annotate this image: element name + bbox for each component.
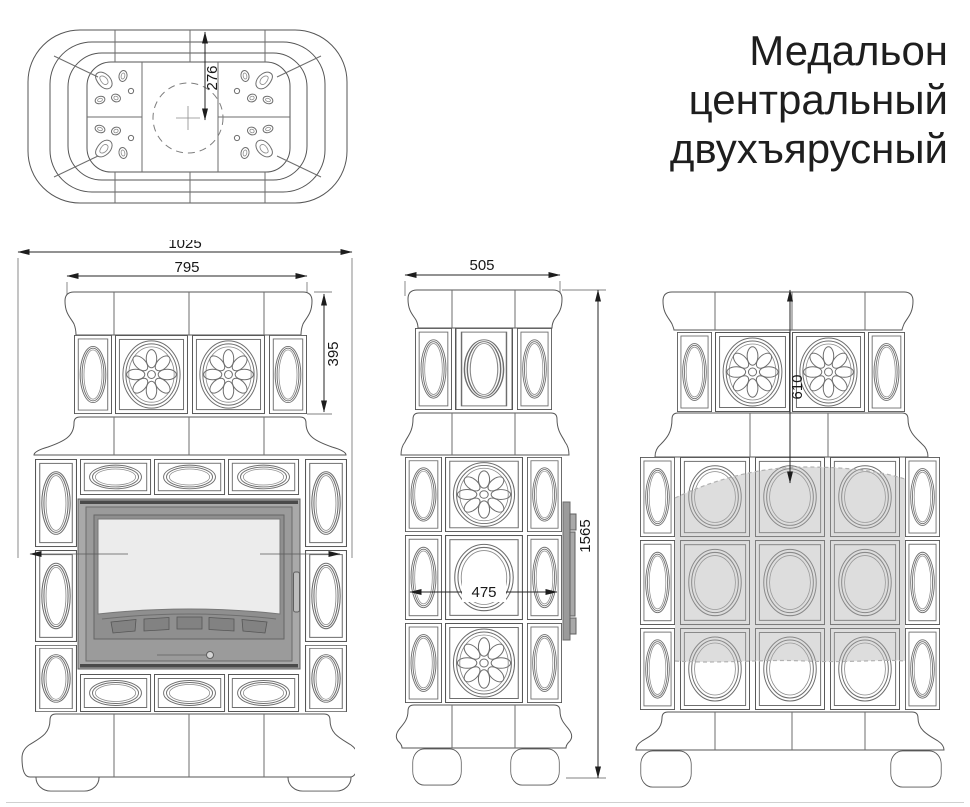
tile-rosette	[192, 335, 264, 413]
tile-oval	[905, 457, 939, 536]
dimension-276-label: 276	[204, 65, 221, 90]
tile-oval	[269, 335, 306, 413]
title-line-1: Медальон	[670, 26, 948, 75]
side-upper-cornice	[408, 290, 562, 328]
door-side-profile	[563, 502, 576, 640]
title-line-3: двухъярусный	[670, 124, 948, 173]
dimension-1025-label: 1025	[168, 240, 201, 252]
tile-oval	[640, 540, 674, 624]
stove-foot	[641, 751, 691, 787]
dimension-395: 395	[307, 292, 342, 414]
title-line-2: центральный	[670, 75, 948, 124]
tile-oval	[405, 457, 441, 531]
tile-oval	[905, 540, 939, 624]
tile-oval	[640, 628, 674, 709]
front-view: 1025 795 395	[10, 240, 355, 807]
tile-oval-horizontal	[80, 675, 150, 712]
drawing-title: Медальон центральный двухъярусный	[670, 26, 948, 173]
side-plinth	[396, 705, 571, 748]
tile-oval-horizontal	[154, 675, 224, 712]
front-upper-cornice	[65, 292, 312, 335]
dimension-1565-label: 1565	[577, 519, 594, 552]
back-view: 610	[622, 240, 962, 807]
tile-oval	[306, 551, 347, 642]
tile-oval	[306, 459, 347, 546]
dimension-475-label: 475	[471, 584, 496, 601]
dimension-610-label: 610	[789, 374, 806, 399]
back-upper-cornice	[663, 292, 913, 330]
front-plinth	[22, 714, 355, 777]
tile-oval	[527, 535, 561, 619]
tile-rosette	[716, 333, 790, 412]
door-handle[interactable]	[294, 572, 300, 612]
tile-rosette	[446, 624, 523, 703]
tile-oval-horizontal	[228, 459, 298, 494]
back-middle-cornice	[655, 413, 928, 457]
tile-oval	[36, 645, 77, 711]
stove-foot	[413, 749, 462, 785]
dimension-395-label: 395	[325, 341, 342, 366]
stove-foot	[511, 749, 560, 785]
side-view: 505 475	[393, 240, 618, 807]
door-bottom-edge	[80, 664, 298, 668]
tile-oval-horizontal	[228, 675, 298, 712]
stove-foot	[891, 751, 941, 787]
tile-oval	[415, 328, 451, 409]
tile-oval	[677, 332, 711, 411]
tile-oval-horizontal	[80, 459, 150, 494]
back-plinth	[636, 712, 944, 750]
tile-oval	[527, 623, 561, 702]
door-top-edge	[80, 501, 298, 505]
tile-oval	[517, 328, 551, 409]
heated-zone-shading	[675, 467, 905, 662]
tile-oval-horizontal	[154, 459, 224, 494]
tile-oval	[640, 457, 674, 536]
tile-oval	[306, 645, 347, 711]
tile-oval	[527, 457, 561, 531]
tile-oval	[74, 335, 111, 413]
dimension-795-label: 795	[174, 259, 199, 276]
tile-oval	[405, 623, 441, 702]
plan-rings	[28, 30, 347, 203]
tile-rosette	[446, 457, 523, 531]
side-middle-cornice	[401, 413, 569, 455]
tile-oval	[405, 535, 441, 619]
top-plan-view: 276	[14, 8, 359, 208]
tile-oval-large	[456, 328, 513, 409]
scan-border-line	[6, 802, 964, 803]
dimension-505-label: 505	[469, 257, 494, 274]
tile-rosette	[115, 335, 187, 413]
front-middle-cornice	[34, 417, 346, 455]
tile-oval	[36, 459, 77, 546]
firebox-door	[78, 499, 300, 669]
drawing-sheet: Медальон центральный двухъярусный	[0, 0, 970, 807]
dimension-795: 795	[67, 259, 307, 295]
tile-oval	[36, 551, 77, 642]
tile-oval-large	[446, 536, 523, 620]
tile-oval	[868, 332, 904, 411]
door-glass	[98, 519, 280, 614]
tile-oval	[905, 628, 939, 709]
